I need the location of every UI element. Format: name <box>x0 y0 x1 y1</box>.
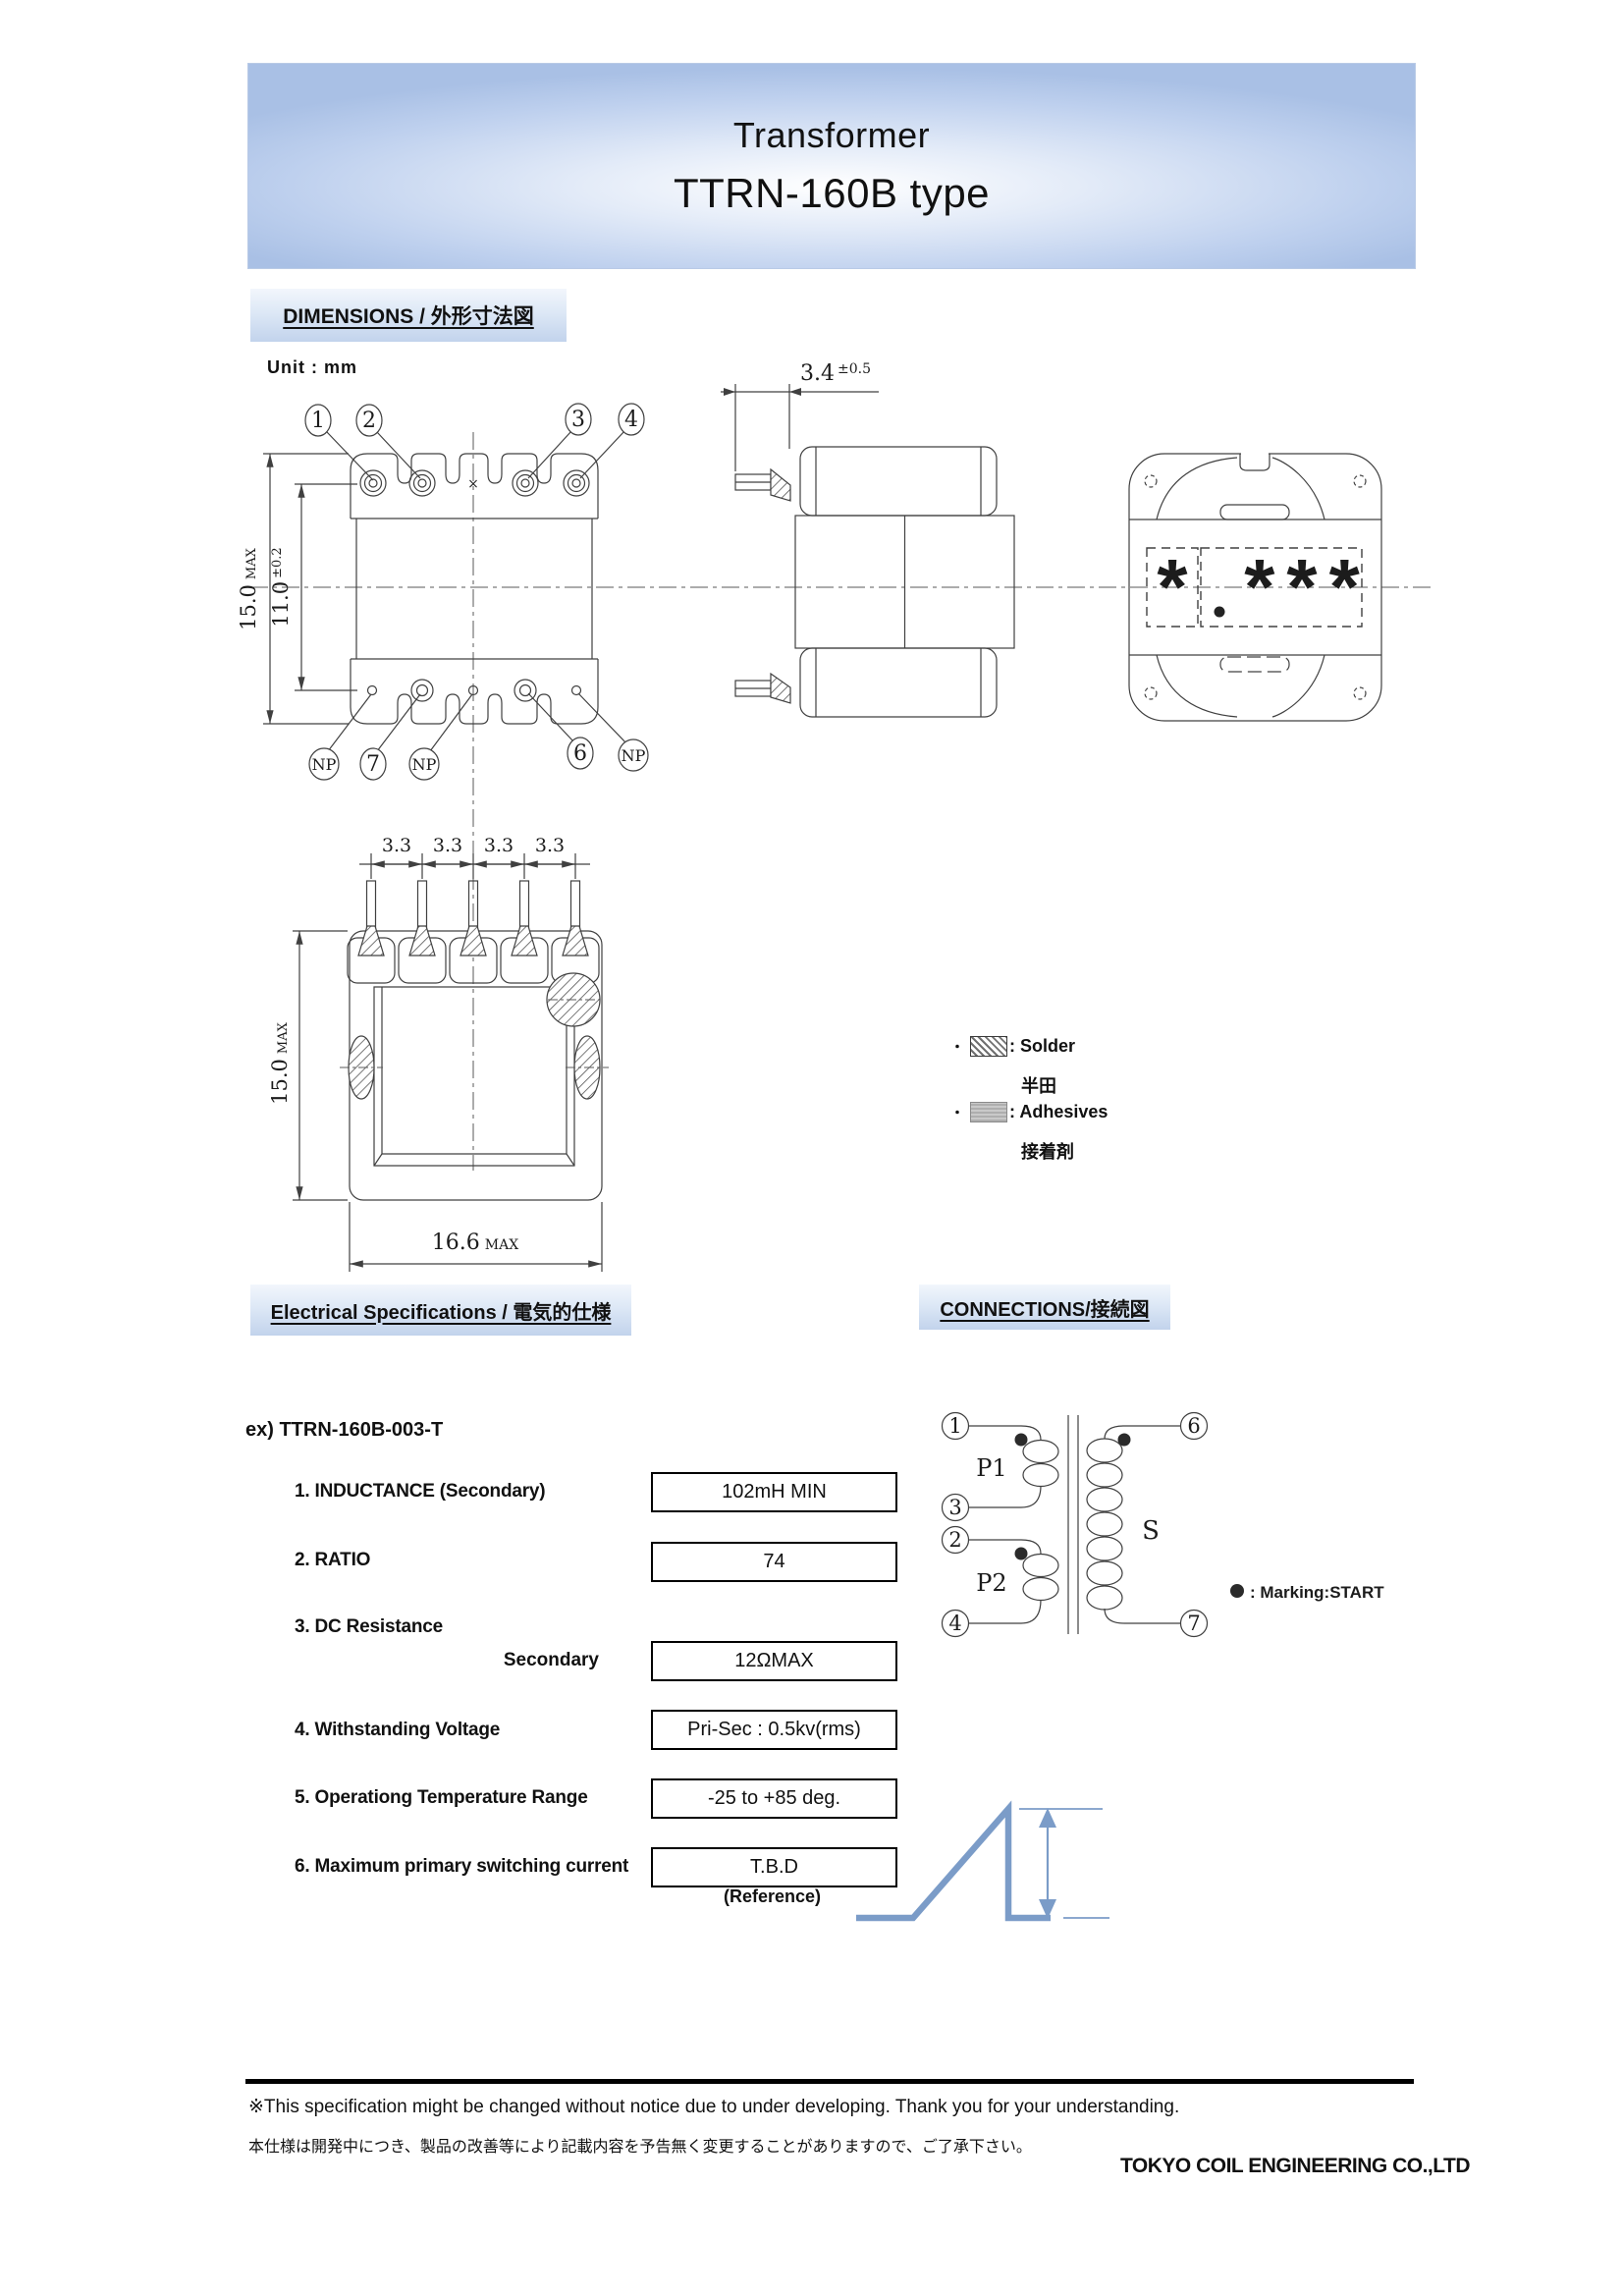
solder-fillet-bottom <box>771 674 790 703</box>
p2-start-dot <box>1015 1548 1028 1560</box>
legend-adhesives-jp: 接着剤 <box>1021 1138 1074 1164</box>
s-start-dot <box>1118 1434 1131 1447</box>
pitch-label-2: 3.3 <box>433 835 462 856</box>
footer-rule <box>245 2079 1414 2084</box>
pin-3: 3 <box>948 1496 961 1519</box>
transformer-side-outline <box>721 384 1014 717</box>
dim-3-4: 3.4±0.5 <box>800 361 871 386</box>
sawtooth-waveform <box>856 1809 1109 1918</box>
pitch-label-1: 3.3 <box>382 835 411 856</box>
dim-front-width: 16.6MAX <box>432 1230 518 1255</box>
callout-3: 3 <box>571 408 585 432</box>
callout-np2: NP <box>412 755 437 774</box>
top-view-texts: 1 2 3 4 NP 7 NP 6 NP × 15.0MAX 11.0±0.2 <box>237 408 646 777</box>
top-view-drawing: 1 2 3 4 NP 7 NP 6 NP × 15.0MAX 11.0±0.2 <box>238 388 689 791</box>
callout-6: 6 <box>573 741 587 766</box>
spec-label-inductance: 1. INDUCTANCE (Secondary) <box>295 1481 545 1503</box>
pitch-dimension <box>359 853 590 879</box>
legend-adhesives: ・ : Adhesives <box>950 1102 1108 1122</box>
callout-2: 2 <box>362 409 376 433</box>
spec-label-ratio: 2. RATIO <box>295 1550 370 1571</box>
footer-note-en: ※This specification might be changed wit… <box>248 2096 1179 2118</box>
solder-fillet-top <box>771 469 790 501</box>
spec-value-dc-resistance: 12ΩMAX <box>651 1641 897 1681</box>
marking-asterisk-code: *** <box>1244 543 1371 630</box>
spec-label-temperature-range: 5. Operationg Temperature Range <box>295 1787 588 1809</box>
center-mark: × <box>467 476 479 492</box>
pin-2: 2 <box>948 1528 961 1552</box>
marking-texts: * *** <box>1157 543 1371 630</box>
spec-label-dc-resistance: 3. DC Resistance <box>295 1616 443 1638</box>
legend-solder: ・ : Solder <box>950 1036 1075 1057</box>
spec-sublabel-secondary: Secondary <box>412 1650 599 1671</box>
connection-texts: 1 3 2 4 6 7 P1 P2 S <box>948 1414 1200 1635</box>
pin-7: 7 <box>1187 1612 1200 1635</box>
callout-1: 1 <box>311 409 325 433</box>
pin-1: 1 <box>948 1414 961 1438</box>
callout-7: 7 <box>366 752 380 777</box>
marking-start-note: : Marking:START <box>1250 1583 1384 1602</box>
section-electrical-title: Electrical Specifications / 電気的仕様 <box>271 1296 612 1325</box>
transformer-top-outline <box>263 404 648 780</box>
legend-bullet-icon: ・ <box>950 1037 964 1057</box>
dim-15-0-max: 15.0MAX <box>237 547 260 629</box>
company-name: TOKYO COIL ENGINEERING CO.,LTD <box>1120 2155 1470 2178</box>
section-connections-header: CONNECTIONS/接続図 <box>919 1285 1170 1330</box>
dim-11-0: 11.0±0.2 <box>269 547 293 627</box>
legend-solder-label: : Solder <box>1009 1036 1075 1057</box>
footer-note-jp: 本仕様は開発中につき、製品の改善等により記載内容を予告無く変更することがあります… <box>248 2133 1032 2157</box>
winding-p1-label: P1 <box>976 1454 1006 1482</box>
legend-adhesives-label: : Adhesives <box>1009 1102 1108 1122</box>
pitch-label-3: 3.3 <box>484 835 514 856</box>
solder-hatch-swatch-icon <box>970 1036 1007 1057</box>
transformer-front-outline <box>293 853 609 1272</box>
front-view-drawing: 3.3 3.3 3.3 3.3 15.0MAX 16.6MAX <box>234 810 676 1282</box>
pin-6: 6 <box>1187 1414 1200 1438</box>
winding-schematic <box>943 1413 1208 1637</box>
legend-bullet-icon: ・ <box>950 1103 964 1122</box>
pin-4: 4 <box>948 1612 961 1635</box>
spec-label-withstanding-voltage: 4. Withstanding Voltage <box>295 1720 500 1741</box>
marking-legend-dot <box>1230 1584 1244 1598</box>
section-connections-title: CONNECTIONS/接続図 <box>940 1293 1149 1322</box>
marking-dot <box>1215 607 1225 618</box>
back-view-drawing: * *** <box>1100 427 1443 751</box>
spec-value-withstanding-voltage: Pri-Sec : 0.5kv(rms) <box>651 1710 897 1750</box>
connections-diagram: 1 3 2 4 6 7 P1 P2 S : Marking:START <box>923 1390 1424 1660</box>
spec-value-ratio: 74 <box>651 1542 897 1582</box>
pitch-label-4: 3.3 <box>535 835 565 856</box>
spec-sheet-page: Transformer TTRN-160B type DIMENSIONS / … <box>0 0 1622 2296</box>
p1-start-dot <box>1015 1434 1028 1447</box>
spec-value-inductance: 102mH MIN <box>651 1472 897 1512</box>
reference-waveform <box>839 1792 1134 1940</box>
winding-p2-label: P2 <box>976 1569 1006 1597</box>
spec-label-switching-current: 6. Maximum primary switching current <box>295 1856 628 1878</box>
start-marking-dots <box>1015 1434 1245 1599</box>
dim-front-height: 15.0MAX <box>268 1021 292 1104</box>
legend-solder-jp: 半田 <box>1021 1072 1056 1098</box>
adhesives-swatch-icon <box>970 1102 1007 1122</box>
winding-s-label: S <box>1142 1516 1160 1546</box>
section-electrical-header: Electrical Specifications / 電気的仕様 <box>250 1285 631 1336</box>
side-view-drawing: 3.4±0.5 <box>707 339 1041 766</box>
pin-pads-bottom <box>368 680 581 701</box>
example-part-number: ex) TTRN-160B-003-T <box>245 1419 443 1442</box>
callout-4: 4 <box>624 408 638 432</box>
callout-np3: NP <box>622 746 646 765</box>
marking-asterisk-lot: * <box>1157 543 1188 630</box>
callout-np1: NP <box>312 755 337 774</box>
